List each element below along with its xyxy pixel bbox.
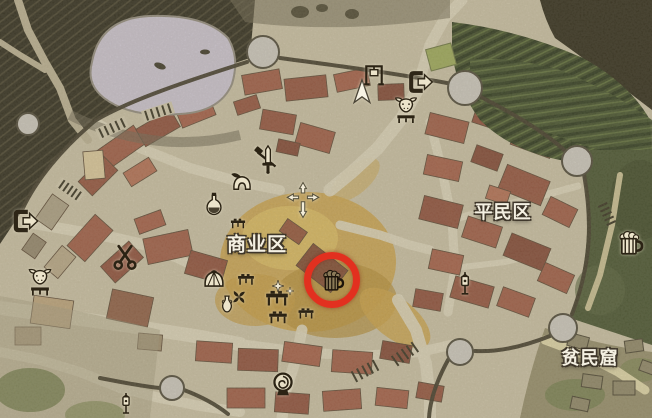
oxcart-icon[interactable]: [24, 267, 56, 299]
highlight-circle[interactable]: [304, 252, 360, 308]
sparkle-icon[interactable]: [286, 287, 294, 295]
crossroad-arrows-icon[interactable]: [282, 179, 324, 221]
market-stall-icon[interactable]: [297, 305, 315, 323]
jug-icon[interactable]: [218, 295, 237, 314]
market-stall-icon[interactable]: [230, 216, 247, 233]
goods-basket-icon[interactable]: [203, 268, 226, 291]
sparkle-icon[interactable]: [272, 280, 284, 292]
city-gate-icon[interactable]: [406, 68, 435, 97]
map-terrain: [0, 0, 652, 418]
market-stall-icon[interactable]: [268, 308, 289, 329]
game-map[interactable]: 商业区平民区贫民窟: [0, 0, 652, 418]
gallows-icon[interactable]: [362, 62, 386, 86]
apothecary-icon[interactable]: [201, 191, 227, 217]
market-stall-icon[interactable]: [237, 271, 256, 290]
lamp-post-icon[interactable]: [115, 392, 138, 415]
tavern-mug-icon[interactable]: [615, 228, 646, 259]
oxcart-icon[interactable]: [391, 96, 422, 127]
lamp-post-icon[interactable]: [453, 271, 478, 296]
tavern-mug-icon: [319, 267, 346, 294]
well-icon[interactable]: [270, 371, 297, 398]
weapon-shop-icon[interactable]: [253, 144, 283, 174]
scissors-icon[interactable]: [112, 244, 139, 271]
armor-shop-icon[interactable]: [230, 171, 255, 196]
city-gate-icon[interactable]: [10, 206, 40, 236]
